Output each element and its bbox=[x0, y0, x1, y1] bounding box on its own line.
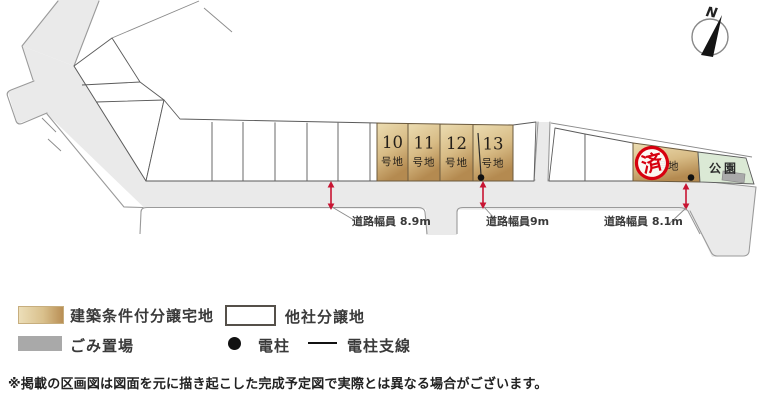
east-lot-2 bbox=[585, 134, 633, 181]
subdivision-plot-map-page: 10 号地 11 号地 12 号地 13 号地 号地 公園 済 bbox=[0, 0, 760, 419]
lot-12-number: 12 bbox=[446, 134, 467, 153]
legend-gray-label: ごみ置場 bbox=[70, 335, 134, 356]
disclaimer-note: ※掲載の区画図は図面を元に描き起こした完成予定図で実際とは異なる場合がございます… bbox=[8, 373, 548, 392]
legend-pole-label: 電柱 bbox=[258, 335, 290, 356]
legend-white-swatch bbox=[225, 305, 276, 326]
road-width-label-1: 道路幅員 8.9m bbox=[352, 214, 431, 228]
legend-tan-swatch bbox=[18, 306, 64, 324]
utility-pole-legend-icon bbox=[228, 337, 241, 350]
utility-pole-icon bbox=[688, 174, 695, 181]
legend-gray-swatch bbox=[18, 336, 62, 351]
legend-tan-label: 建築条件付分譲宅地 bbox=[70, 305, 214, 326]
lot-10-suffix: 号地 bbox=[381, 155, 404, 168]
lot-10-number: 10 bbox=[382, 133, 403, 152]
lot-12-suffix: 号地 bbox=[445, 156, 468, 169]
lot-11-suffix: 号地 bbox=[413, 156, 436, 169]
west-lot-row bbox=[146, 100, 377, 181]
legend-white-label: 他社分譲地 bbox=[285, 306, 365, 327]
road-width-label-2: 道路幅員9m bbox=[486, 214, 549, 228]
plot-map: 10 号地 11 号地 12 号地 13 号地 号地 公園 済 bbox=[0, 0, 760, 280]
compass-icon: N bbox=[692, 4, 728, 57]
legend-wire-label: 電柱支線 bbox=[347, 335, 411, 356]
guy-wire-legend-icon bbox=[308, 342, 337, 344]
utility-pole-icon bbox=[478, 174, 485, 181]
road-width-label-3: 道路幅員 8.1m bbox=[604, 214, 683, 228]
lot-10 bbox=[377, 123, 408, 181]
wedge-lot bbox=[513, 122, 536, 181]
east-lot-1 bbox=[549, 128, 585, 181]
lot-11-number: 11 bbox=[414, 134, 435, 153]
park-label: 公園 bbox=[709, 162, 739, 176]
lot-13-number: 13 bbox=[483, 135, 504, 154]
compass-north-label: N bbox=[705, 4, 720, 22]
lot-13-suffix: 号地 bbox=[482, 157, 505, 170]
